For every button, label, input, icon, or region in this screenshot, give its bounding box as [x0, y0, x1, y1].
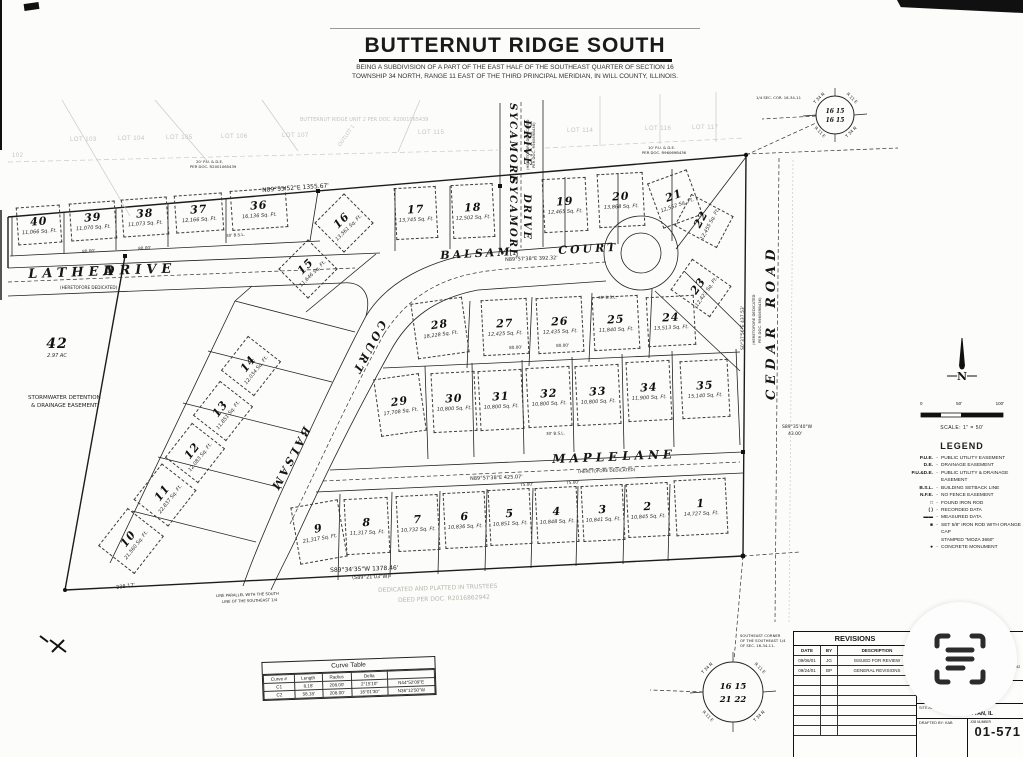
annotation: 30' B.S.L. [226, 233, 245, 238]
legend-dash: - [933, 455, 941, 462]
lot-area: 10,800 Sq. Ft. [532, 400, 567, 408]
annotation: 30' B.S.L. [598, 295, 617, 300]
revision-cell [821, 676, 838, 685]
lot-number: 35 [696, 379, 714, 391]
revision-cell: BP [821, 666, 838, 675]
lot-4: 410,848 Sq. Ft. [535, 486, 580, 544]
revision-cell [794, 706, 821, 715]
street-label-lane: LANE [622, 448, 676, 462]
legend-entry: B.S.L.-BUILDING SETBACK LINE [901, 485, 1023, 492]
scan-badge[interactable] [903, 602, 1017, 716]
lot-24: 2413,513 Sq. Ft. [646, 295, 697, 347]
legend-symbol: ■ [901, 522, 933, 529]
lot-6: 610,836 Sq. Ft. [443, 491, 488, 549]
lot-area: 13,745 Sq. Ft. [399, 216, 434, 224]
lot-19: 1912,465 Sq. Ft. [542, 177, 589, 233]
annotation: (S89°21'03"W) [352, 575, 389, 581]
lot-39: 3911,070 Sq. Ft. [69, 200, 118, 241]
legend-description: DRAINAGE EASEMENT [941, 462, 1023, 469]
lot-number: 5 [505, 507, 514, 518]
north-letter: N [957, 370, 967, 383]
lot-number: 26 [551, 315, 569, 327]
lot-2: 210,845 Sq. Ft. [626, 482, 671, 538]
revision-cell [794, 726, 821, 735]
curve-table: Curve Table Curve #LengthRadiusDelta C18… [261, 656, 436, 701]
legend-dash: - [933, 507, 941, 514]
lot-34: 3411,900 Sq. Ft. [625, 360, 672, 422]
lot-number: 1 [696, 497, 705, 508]
drafted-by-label: DRAFTED BY: [919, 721, 944, 725]
revision-cell [821, 726, 838, 735]
revision-cell [794, 676, 821, 685]
drafted-by-value: KAB [945, 721, 953, 725]
revision-cell [838, 676, 916, 685]
revision-cell: JG [821, 656, 838, 665]
legend-description: RECORDED DATA [941, 507, 1023, 514]
lot-28: 2818,228 Sq. Ft. [410, 297, 469, 360]
lot-number: 39 [84, 211, 102, 223]
legend-symbol: B.S.L. [901, 485, 933, 492]
revisions-header-row: DATE BY DESCRIPTION [794, 646, 916, 656]
lot-area: 12,465 Sq. Ft. [548, 208, 583, 216]
lot-area: 10,841 Sq. Ft. [586, 516, 621, 524]
lot-area: 16,136 Sq. Ft. [242, 211, 277, 219]
annotation: OUTLOT 1 [338, 124, 356, 147]
firm-bottom-row: DRAFTED BY: KAB JOB NUMBER 01-571 [917, 719, 1023, 757]
adjacent-lot-116: LOT 116 [645, 126, 671, 132]
curve-cell: 16°01'30" [352, 687, 388, 696]
lot-area: 21,317 Sq. Ft. [302, 532, 338, 544]
annotation: DEDICATED AND PLATTED IN TRUSTEES [378, 584, 497, 594]
annotation: DEED PER DOC. R2016862942 [398, 595, 490, 604]
legend-dash: - [933, 514, 941, 521]
annotation: N89°55'52"E 1355.67' [262, 183, 329, 194]
lot-16: 1613,561 Sq. Ft. [314, 193, 373, 252]
lot-area: 17,708 Sq. Ft. [383, 406, 419, 417]
annotation: PER DOC. R2001065439 [190, 165, 236, 169]
lot-area: 10,845 Sq. Ft. [631, 513, 666, 521]
revision-cell [794, 716, 821, 725]
lot-area: 14,727 Sq. Ft. [684, 510, 719, 518]
adjacent-lot-103: LOT 103 [70, 137, 97, 143]
legend-entry: STAMPED "MOZA 3660" [901, 537, 1023, 544]
annotation: & DRAINAGE EASEMENT [31, 404, 97, 410]
lot-number: 29 [390, 394, 409, 407]
legend-entry: P.U.E.-PUBLIC UTILITY EASEMENT [901, 455, 1023, 462]
legend-symbol: □ [901, 500, 933, 507]
annotation: 75.00' [520, 483, 533, 488]
lot-area: 10,732 Sq. Ft. [401, 526, 436, 534]
lot-33: 3310,800 Sq. Ft. [574, 364, 621, 426]
legend-dash: - [933, 492, 941, 499]
revision-row [794, 706, 916, 716]
legend-description: MEASURED DATA [941, 514, 1023, 521]
lot-area: 13,513 Sq. Ft. [654, 324, 689, 332]
annotation: 1/4 SEC. COR. 16-34-11 [756, 96, 801, 100]
lot-area: 11,073 Sq. Ft. [128, 219, 163, 227]
legend-description: PUBLIC UTILITY EASEMENT [941, 455, 1023, 462]
lot-14: 1412,034 Sq. Ft. [221, 336, 281, 397]
legend-description: BUILDING SETBACK LINE [941, 485, 1023, 492]
lot-area: 12,166 Sq. Ft. [182, 215, 217, 223]
legend-symbol: P.U.E. [901, 455, 933, 462]
annotation: PER DOC. R96069B436) [532, 122, 536, 168]
lot-35: 3515,140 Sq. Ft. [680, 359, 731, 419]
lot-number: 24 [662, 311, 680, 323]
lot-number: 4 [552, 505, 561, 516]
annotation: STORMWATER DETENTION [28, 396, 101, 402]
document-scan-icon [933, 632, 987, 686]
lot-number: 2 [643, 500, 652, 511]
drafted-by-cell: DRAFTED BY: KAB [917, 719, 968, 757]
revision-cell [838, 686, 916, 695]
lot-number: 40 [30, 215, 48, 227]
annotation: BUTTERNUT RIDGE UNIT 2 PER DOC. R2001065… [300, 118, 428, 123]
annotation: 238.17' [116, 583, 135, 591]
legend-description: NO FENCE EASEMENT [941, 492, 1023, 499]
legend-dash: - [933, 500, 941, 507]
lot-17: 1713,745 Sq. Ft. [394, 186, 439, 240]
lot-9: 921,317 Sq. Ft. [290, 499, 347, 564]
street-label-balsam: BALSAM [440, 246, 513, 261]
annotation: 43.00' [788, 433, 802, 438]
lot-number: 42 [46, 337, 67, 351]
lot-number: 7 [413, 513, 422, 524]
lot-number: 38 [136, 207, 154, 219]
legend-dash: - [933, 544, 941, 551]
lot-3: 310,841 Sq. Ft. [581, 484, 626, 542]
lot-number: 20 [612, 190, 630, 202]
lot-area: 11,900 Sq. Ft. [632, 394, 667, 402]
lot-15: 1511,646 Sq. Ft. [278, 239, 337, 298]
scale-ticks: 0 50' 100' [920, 401, 1004, 406]
legend-description: SET 5/8" IRON ROD WITH ORANGE CAP [941, 522, 1023, 537]
annotation: 80.00' [82, 249, 95, 254]
legend-description: STAMPED "MOZA 3660" [941, 537, 1023, 544]
legend-description: CONCRETE MONUMENT [941, 544, 1023, 551]
rev-h-by: BY [821, 646, 838, 655]
legend-description: FOUND IRON ROD [941, 500, 1023, 507]
adjacent-lot-117: LOT 117 [692, 125, 718, 131]
curve-table-grid: Curve #LengthRadiusDelta C18.18'208.00'2… [263, 669, 436, 700]
lot-number: 31 [492, 390, 510, 402]
legend-entry: D.E.-DRAINAGE EASEMENT [901, 462, 1023, 469]
lot-area: 2.97 AC [47, 353, 67, 359]
lot-20: 2013,868 Sq. Ft. [597, 172, 646, 228]
lot-36: 3616,136 Sq. Ft. [230, 187, 289, 231]
lot-number: 37 [190, 203, 208, 215]
annotation: (HERETOFORE DEDICATED) [578, 468, 635, 474]
job-number-value: 01-571 [970, 724, 1021, 739]
lot-area: 10,800 Sq. Ft. [437, 405, 472, 413]
revision-row [794, 696, 916, 706]
adjacent-lot-106: LOT 106 [221, 134, 248, 140]
plat-sheet: BUTTERNUT RIDGE SOUTH BEING A SUBDIVISIO… [0, 0, 1023, 757]
legend-symbol: P.U.&D.E. [901, 470, 933, 477]
lot-number: 27 [496, 317, 514, 329]
scale-bar-graphic [920, 412, 1004, 419]
annotation: OF SEC. 16-34-11- [740, 644, 775, 648]
lot-8: 811,317 Sq. Ft. [344, 497, 391, 555]
street-label-court: COURT [350, 319, 388, 377]
lot-38: 3811,073 Sq. Ft. [121, 196, 170, 237]
scale-bar: 0 50' 100' SCALE: 1" = 50' [901, 401, 1023, 431]
revision-cell [838, 716, 916, 725]
lot-18: 1812,502 Sq. Ft. [451, 183, 496, 239]
lot-31: 3110,800 Sq. Ft. [477, 369, 524, 431]
lot-area: 10,848 Sq. Ft. [540, 518, 575, 526]
revision-cell: 09/24/01 [794, 666, 821, 675]
annotation: (HERETOFORE DEDICATED [526, 120, 530, 170]
revision-cell [794, 686, 821, 695]
lot-37: 3712,166 Sq. Ft. [174, 192, 225, 233]
street-label-drive: DRIVE [103, 262, 177, 278]
legend-symbol: ( ) [901, 507, 933, 514]
legend-entry: ( )-RECORDED DATA [901, 507, 1023, 514]
annotation: S0°37'56"E 437.53' [742, 306, 747, 350]
adjacent-lot-107: LOT 107 [282, 133, 309, 139]
lot-42: 422.97 AC [37, 337, 77, 363]
legend-panel: N 0 50' 100' SCALE: 1" = 50' LEGEND P.U.… [901, 336, 1023, 551]
legend-entry: ■-SET 5/8" IRON ROD WITH ORANGE CAP [901, 522, 1023, 537]
lot-number: 9 [313, 522, 323, 534]
lot-32: 3210,800 Sq. Ft. [525, 366, 572, 428]
lot-number: 6 [460, 510, 469, 521]
lot-area: 10,800 Sq. Ft. [581, 398, 616, 406]
lot-25: 2511,840 Sq. Ft. [592, 295, 641, 351]
annotation: S89°35'40"W [782, 426, 812, 431]
revision-cell [838, 706, 916, 715]
street-label-maple: MAPLE [552, 451, 622, 465]
annotation: 80.00' [509, 346, 522, 351]
revision-row [794, 716, 916, 726]
annotation: N89°57'38"E 425.07' [470, 475, 523, 482]
lot-number: 18 [464, 201, 482, 213]
lot-number: 17 [407, 203, 425, 215]
revision-cell [794, 696, 821, 705]
curve-cell: 58.18' [295, 689, 323, 698]
lot-number: 25 [607, 313, 625, 325]
lot-number: 33 [589, 385, 607, 397]
legend-symbol: ● [901, 544, 933, 551]
legend-title: LEGEND [901, 441, 1023, 451]
revisions-title: REVISIONS [794, 632, 916, 646]
legend-symbol: D.E. [901, 462, 933, 469]
revision-cell [821, 696, 838, 705]
adjacent-lot-115: LOT 115 [418, 130, 444, 136]
annotation: N89°57'38"E 392.32' [505, 256, 558, 263]
lot-area: 15,140 Sq. Ft. [688, 392, 723, 400]
lot-number: 8 [362, 516, 371, 527]
annotation: (HERETOFORE DEDICATED [752, 295, 756, 345]
scale-tick-0: 0 [920, 401, 923, 406]
north-arrow-icon: N [939, 336, 985, 394]
lot-area: 11,070 Sq. Ft. [76, 223, 111, 231]
curve-cell: N36°12'50"W [388, 686, 435, 696]
lot-number: 3 [598, 503, 607, 514]
revision-row: 09/06/01JGISSUED FOR REVIEW [794, 656, 916, 666]
annotation: 80.00' [556, 344, 569, 349]
annotation: 30' B.S.L. [546, 431, 565, 436]
revisions-table: REVISIONS DATE BY DESCRIPTION 09/06/01JG… [794, 632, 917, 757]
lot-area: 11,840 Sq. Ft. [599, 326, 634, 334]
revision-row: 09/24/01BPGENERAL REVISIONS [794, 666, 916, 676]
revision-cell [821, 706, 838, 715]
annotation: PER DOC. R96069B436) [758, 297, 762, 343]
legend-description: PUBLIC UTILITY & DRAINAGE EASEMENT [941, 470, 1023, 485]
revision-row [794, 676, 916, 686]
street-label-sycamore: SYCAMORE [507, 103, 517, 185]
legend-entries: P.U.E.-PUBLIC UTILITY EASEMENTD.E.-DRAIN… [901, 455, 1023, 551]
legend-entry: □-FOUND IRON ROD [901, 500, 1023, 507]
lot-area: 12,425 Sq. Ft. [488, 330, 523, 338]
legend-dash: - [933, 485, 941, 492]
lot-40: 4011,066 Sq. Ft. [16, 205, 63, 246]
lot-5: 510,851 Sq. Ft. [488, 488, 533, 546]
revision-row [794, 686, 916, 696]
rev-h-date: DATE [794, 646, 821, 655]
lot-area: 11,317 Sq. Ft. [350, 529, 385, 537]
street-label-court: COURT [558, 242, 619, 256]
revision-cell [821, 716, 838, 725]
legend-dash: - [933, 462, 941, 469]
lot-number: 30 [445, 392, 463, 404]
revisions-rows: 09/06/01JGISSUED FOR REVIEW09/24/01BPGEN… [794, 656, 916, 736]
lot-number: 36 [250, 199, 268, 211]
street-label-road: ROAD [765, 245, 778, 309]
lot-area: 11,066 Sq. Ft. [22, 227, 57, 235]
revision-row [794, 726, 916, 736]
lot-30: 3010,800 Sq. Ft. [430, 371, 477, 433]
revision-cell [838, 696, 916, 705]
lot-29: 2917,708 Sq. Ft. [373, 373, 427, 437]
annotation: LINE OF THE SOUTHEAST 1/4 [222, 598, 277, 604]
job-number-cell: JOB NUMBER 01-571 [968, 719, 1023, 757]
street-label-drive: DRIVE [521, 194, 531, 241]
lot-area: 18,228 Sq. Ft. [423, 329, 459, 340]
lot-number: 32 [540, 387, 558, 399]
scale-tick-100: 100' [996, 401, 1004, 406]
scale-tick-50: 50' [956, 401, 962, 406]
street-label-cedar: CEDAR [765, 323, 778, 400]
legend-symbol: ▬▬ [901, 514, 933, 521]
lot-area: 12,435 Sq. Ft. [543, 328, 578, 336]
lot-10: 1021,560 Sq. Ft. [98, 508, 164, 574]
legend-entry: N.F.E.-NO FENCE EASEMENT [901, 492, 1023, 499]
lot-area: 10,851 Sq. Ft. [493, 520, 528, 528]
adjacent-lot-104: LOT 104 [118, 136, 145, 142]
curve-cell: 208.00' [322, 688, 351, 697]
legend-dash: - [933, 522, 941, 529]
annotation: 75.00' [566, 481, 579, 486]
lot-7: 710,732 Sq. Ft. [396, 494, 441, 552]
adjacent-lot-114: LOT 114 [567, 128, 593, 134]
lot-number: 19 [556, 195, 574, 207]
annotation: PER DOC. R96069B436 [642, 151, 686, 155]
lot-area: 12,502 Sq. Ft. [456, 214, 491, 222]
lot-number: 28 [430, 317, 449, 330]
lot-area: 10,836 Sq. Ft. [448, 523, 483, 531]
lot-number: 34 [640, 381, 658, 393]
street-label-sycamore: SYCAMORE [507, 177, 517, 259]
lot-1: 114,727 Sq. Ft. [674, 478, 729, 537]
revision-cell [838, 726, 916, 735]
adjacent-lot-105: LOT 105 [166, 135, 193, 141]
legend-entry: ●-CONCRETE MONUMENT [901, 544, 1023, 551]
revision-cell [821, 686, 838, 695]
legend-dash: - [933, 470, 941, 477]
scale-text: SCALE: 1" = 50' [901, 425, 1023, 431]
legend-symbol: N.F.E. [901, 492, 933, 499]
revision-cell: 09/06/01 [794, 656, 821, 665]
lot-area: 10,800 Sq. Ft. [484, 403, 519, 411]
legend-entry: ▬▬-MEASURED DATA [901, 514, 1023, 521]
adjacent-102: 102 [12, 153, 24, 159]
street-label-balsam: BALSAM [268, 425, 312, 494]
annotation: (HERETOFORE DEDICATED) [60, 286, 117, 290]
legend-entry: P.U.&D.E.-PUBLIC UTILITY & DRAINAGE EASE… [901, 470, 1023, 485]
annotation: 80.00' [138, 246, 151, 251]
lot-area: 13,868 Sq. Ft. [604, 203, 639, 211]
curve-cell: C2 [264, 690, 295, 699]
